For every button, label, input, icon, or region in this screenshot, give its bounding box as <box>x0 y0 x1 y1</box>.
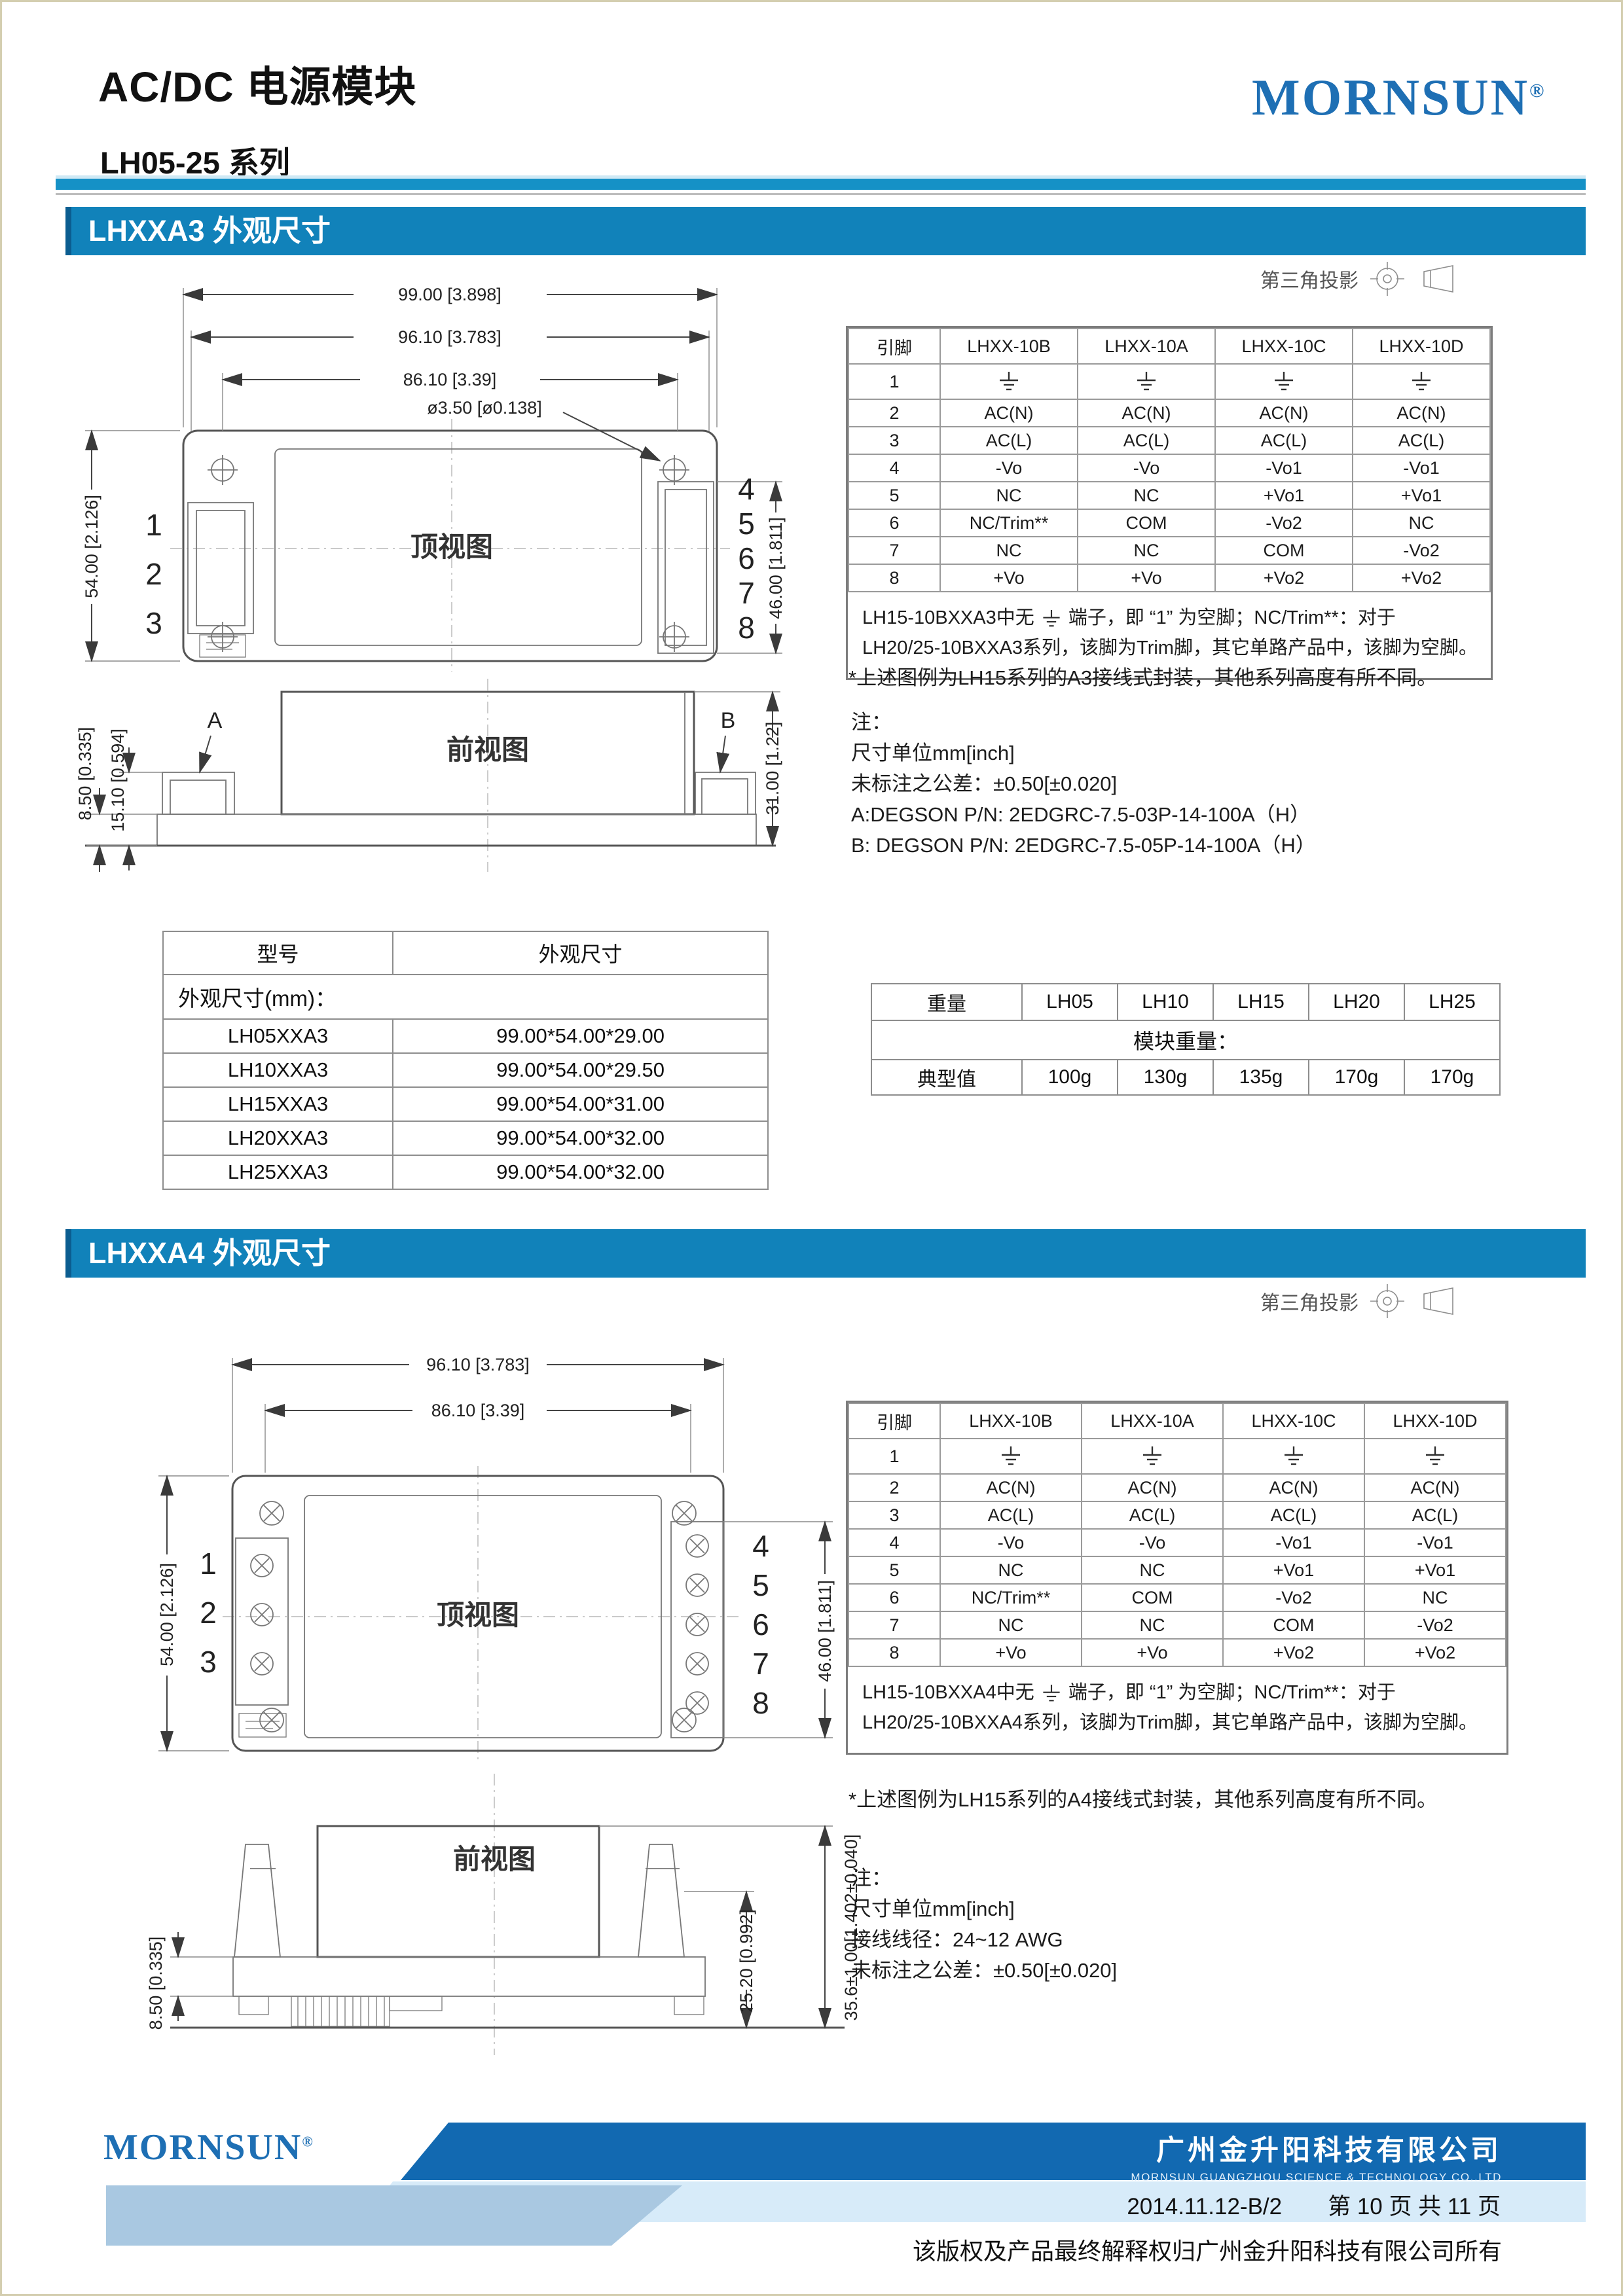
brand-logo: MORNSUN® <box>1252 68 1546 127</box>
column-header: LH05 <box>1022 984 1118 1020</box>
revision-code: 2014.11.12-B/2 <box>1127 2194 1282 2219</box>
page-title: AC/DC 电源模块 <box>98 54 416 114</box>
column-header: LHXX-10B <box>940 329 1078 364</box>
table-row: 6NC/Trim**COM-Vo2NC <box>848 509 1490 537</box>
pin-number: 4 <box>752 1529 769 1563</box>
table-cell: 1 <box>848 364 940 399</box>
table-cell: -Vo <box>1078 454 1215 482</box>
table-row: 7NCNCCOM-Vo2 <box>848 537 1490 564</box>
table-row: LH25XXA399.00*54.00*32.00 <box>163 1155 768 1189</box>
pin-table-body: 12AC(N)AC(N)AC(N)AC(N)3AC(L)AC(L)AC(L)AC… <box>848 1439 1506 1666</box>
column-header: LHXX-10D <box>1364 1403 1506 1439</box>
hole-dim-label: ø3.50 [ø0.138] <box>427 398 542 418</box>
table-cell: +Vo <box>1082 1639 1223 1666</box>
table-cell: 5 <box>848 482 940 509</box>
table-cell: AC(N) <box>940 1474 1082 1501</box>
column-header: 外观尺寸 <box>393 931 768 975</box>
footer-parallelogram <box>106 2185 682 2246</box>
callout-b: B <box>721 708 736 733</box>
table-cell: +Vo2 <box>1215 564 1353 592</box>
datasheet-page: AC/DC 电源模块 LH05-25 系列 MORNSUN® LHXXA3 外观… <box>0 0 1623 2296</box>
note-line: A:DEGSON P/N: 2EDGRC-7.5-03P-14-100A（H） <box>851 799 1316 830</box>
earth-ground-icon <box>1408 370 1434 393</box>
table-cell: NC <box>940 537 1078 564</box>
terminal-tower-left <box>234 1844 280 1957</box>
table-cell: 6 <box>848 1584 940 1611</box>
table-cell <box>1078 364 1215 399</box>
pin-number: 5 <box>752 1568 769 1602</box>
table-cell: 典型值 <box>871 1060 1022 1095</box>
table-cell: 99.00*54.00*32.00 <box>393 1121 768 1155</box>
weight-table-head: 重量LH05LH10LH15LH20LH25 <box>871 984 1500 1020</box>
dim-label: 99.00 [3.898] <box>398 285 501 304</box>
note-line: 接线线径：24~12 AWG <box>851 1924 1117 1955</box>
pin-table-head: 引脚LHXX-10BLHXX-10ALHXX-10CLHXX-10D <box>848 329 1490 364</box>
copyright-line: 该版权及产品最终解释权归广州金升阳科技有限公司所有 <box>913 2233 1502 2267</box>
table-cell: 2 <box>848 1474 940 1501</box>
table-row: LH20XXA399.00*54.00*32.00 <box>163 1121 768 1155</box>
dim-table-body: LH05XXA399.00*54.00*29.00LH10XXA399.00*5… <box>163 1019 768 1189</box>
earth-ground-icon <box>1040 609 1063 629</box>
column-header: LH10 <box>1118 984 1213 1020</box>
third-angle-projection-label: 第三角投影 <box>1260 1287 1359 1316</box>
table-cell: NC <box>1082 1611 1223 1639</box>
table-header-row: 引脚LHXX-10BLHXX-10ALHXX-10CLHXX-10D <box>848 329 1490 364</box>
note-line: 尺寸单位mm[inch] <box>851 1893 1117 1924</box>
table-cell: COM <box>1078 509 1215 537</box>
table-row: 7NCNCCOM-Vo2 <box>848 1611 1506 1639</box>
notes-block: 注： 尺寸单位mm[inch] 未标注之公差：±0.50[±0.020] A:D… <box>851 707 1316 861</box>
module-weight-table: 模块重量： 重量LH05LH10LH15LH20LH25 典型值100g130g… <box>871 983 1501 1096</box>
table-cell: NC/Trim** <box>940 1584 1082 1611</box>
column-header: LHXX-10D <box>1353 329 1490 364</box>
table-cell: AC(N) <box>1223 1474 1364 1501</box>
table-cell <box>1223 1439 1364 1474</box>
table-cell: 6 <box>848 509 940 537</box>
table-cell: +Vo1 <box>1364 1556 1506 1584</box>
weight-table-body: 典型值100g130g135g170g170g <box>871 1060 1500 1095</box>
table-row: LH10XXA399.00*54.00*29.50 <box>163 1053 768 1087</box>
company-name-en: MORNSUN GUANGZHOU SCIENCE & TECHNOLOGY C… <box>1131 2171 1502 2184</box>
dim-label: 8.50 [0.335] <box>146 1937 166 2030</box>
column-header: LH25 <box>1404 984 1500 1020</box>
table-row: 8+Vo+Vo+Vo2+Vo2 <box>848 1639 1506 1666</box>
table-cell: -Vo2 <box>1353 537 1490 564</box>
dim-label: 46.00 [1.811] <box>766 517 786 619</box>
earth-ground-icon <box>1133 370 1159 393</box>
earth-ground-icon <box>1422 1445 1448 1467</box>
pin-number: 5 <box>738 507 755 541</box>
table-cell: AC(L) <box>1215 427 1353 454</box>
table-cell: AC(L) <box>1364 1501 1506 1529</box>
terminal-block-right <box>658 482 714 653</box>
table-cell: 7 <box>848 537 940 564</box>
column-header: LHXX-10C <box>1215 329 1353 364</box>
company-name-cn: 广州金升阳科技有限公司 <box>1131 2128 1502 2168</box>
notes-block: 注： 尺寸单位mm[inch] 接线线径：24~12 AWG 未标注之公差：±0… <box>851 1863 1117 1986</box>
table-cell: 130g <box>1118 1060 1213 1095</box>
table-title-row: 模块重量： <box>871 1020 1500 1060</box>
note-line: 未标注之公差：±0.50[±0.020] <box>851 768 1316 799</box>
page-number-info: 第 10 页 共 11 页 <box>1328 2194 1501 2219</box>
table-cell: -Vo1 <box>1223 1529 1364 1556</box>
lhxxa4-front-view-drawing: 前视图 8.50 [0.335] 25.20 [0.992] 35.6±1.00… <box>131 1767 884 2075</box>
table-cell: AC(L) <box>1223 1501 1364 1529</box>
table-cell: AC(N) <box>1353 399 1490 427</box>
terminal-block-right <box>671 1522 723 1738</box>
footer-revision-line: 2014.11.12-B/2第 10 页 共 11 页 <box>1127 2188 1501 2221</box>
table-cell: +Vo <box>940 564 1078 592</box>
table-cell: AC(L) <box>1353 427 1490 454</box>
table-cell: -Vo1 <box>1215 454 1353 482</box>
table-cell: COM <box>1215 537 1353 564</box>
pin-table-head: 引脚LHXX-10BLHXX-10ALHXX-10CLHXX-10D <box>848 1403 1506 1439</box>
projection-cone-icon <box>1416 264 1457 294</box>
table-cell: -Vo2 <box>1364 1611 1506 1639</box>
header-rule <box>56 175 1586 195</box>
table-cell: -Vo1 <box>1364 1529 1506 1556</box>
column-header: LHXX-10C <box>1223 1403 1364 1439</box>
table-cell: +Vo2 <box>1353 564 1490 592</box>
brand-logo-text: MORNSUN <box>1252 69 1529 126</box>
table-cell: +Vo1 <box>1215 482 1353 509</box>
table-title: 模块重量： <box>871 1020 1500 1060</box>
table-cell: AC(L) <box>1082 1501 1223 1529</box>
outline-dimension-table: 外观尺寸(mm)： 型号外观尺寸 LH05XXA399.00*54.00*29.… <box>162 931 769 1190</box>
table-cell: COM <box>1223 1611 1364 1639</box>
table-cell: NC <box>1078 482 1215 509</box>
earth-ground-icon <box>1040 1683 1063 1704</box>
table-row: 3AC(L)AC(L)AC(L)AC(L) <box>848 1501 1506 1529</box>
table-cell: 7 <box>848 1611 940 1639</box>
pin-number: 2 <box>200 1596 217 1630</box>
table-cell: NC <box>1082 1556 1223 1584</box>
table-cell: AC(N) <box>1078 399 1215 427</box>
footer-company: 广州金升阳科技有限公司 MORNSUN GUANGZHOU SCIENCE & … <box>1131 2128 1502 2184</box>
column-header: LHXX-10A <box>1078 329 1215 364</box>
third-angle-projection: 第三角投影 <box>1260 260 1457 297</box>
table-row: 3AC(L)AC(L)AC(L)AC(L) <box>848 427 1490 454</box>
table-cell: -Vo2 <box>1215 509 1353 537</box>
note-text: 端子，即 “1” 为空脚；NC/Trim**：对于 <box>1068 607 1396 628</box>
note-text: LH20/25-10BXXA3系列，该脚为Trim脚，其它单路产品中，该脚为空脚… <box>862 637 1478 658</box>
terminal-block-left <box>236 1538 288 1705</box>
table-cell: AC(N) <box>1215 399 1353 427</box>
table-cell <box>1364 1439 1506 1474</box>
pin-table: 引脚LHXX-10BLHXX-10ALHXX-10CLHXX-10D 12AC(… <box>848 1403 1506 1667</box>
view-label: 顶视图 <box>437 1600 519 1630</box>
dim-label: 25.20 [0.992] <box>737 1909 756 2013</box>
pin-number: 7 <box>752 1647 769 1681</box>
table-header-row: 引脚LHXX-10BLHXX-10ALHXX-10CLHXX-10D <box>848 1403 1506 1439</box>
figure-note: *上述图例为LH15系列的A3接线式封装，其他系列高度有所不同。 <box>848 661 1437 691</box>
callout-a: A <box>208 708 223 733</box>
table-cell: LH25XXA3 <box>163 1155 393 1189</box>
table-cell: LH10XXA3 <box>163 1053 393 1087</box>
table-cell: AC(N) <box>940 399 1078 427</box>
table-cell: LH20XXA3 <box>163 1121 393 1155</box>
table-cell <box>1215 364 1353 399</box>
view-label: 顶视图 <box>410 531 493 562</box>
table-cell: 3 <box>848 1501 940 1529</box>
terminal-front-left <box>162 772 234 814</box>
table-cell: 170g <box>1309 1060 1404 1095</box>
table-cell: 170g <box>1404 1060 1500 1095</box>
table-cell: -Vo <box>1082 1529 1223 1556</box>
table-row: LH15XXA399.00*54.00*31.00 <box>163 1087 768 1121</box>
table-cell <box>940 1439 1082 1474</box>
table-header-row: 型号外观尺寸 <box>163 931 768 975</box>
table-cell <box>1353 364 1490 399</box>
table-title: 外观尺寸(mm)： <box>163 975 768 1019</box>
table-title-row: 外观尺寸(mm)： <box>163 975 768 1019</box>
table-row: 4-Vo-Vo-Vo1-Vo1 <box>848 1529 1506 1556</box>
table-row: 1 <box>848 1439 1506 1474</box>
view-label: 前视图 <box>447 734 529 765</box>
lhxxa4-top-view-drawing: 96.10 [3.783] 86.10 [3.39] 54.00 [2.126]… <box>131 1335 884 1767</box>
table-cell: NC <box>940 1556 1082 1584</box>
dim-label: 31.00 [1.22] <box>763 722 782 816</box>
note-text: 端子，即 “1” 为空脚；NC/Trim**：对于 <box>1068 1682 1396 1703</box>
table-cell: AC(L) <box>940 1501 1082 1529</box>
pin-number: 8 <box>752 1686 769 1720</box>
terminal-tower-right <box>638 1844 684 1957</box>
terminal-block-left <box>188 503 253 634</box>
earth-ground-icon <box>1271 370 1297 393</box>
table-cell: 135g <box>1213 1060 1309 1095</box>
table-row: 1 <box>848 364 1490 399</box>
terminal-front-right <box>695 772 756 814</box>
note-line: 未标注之公差：±0.50[±0.020] <box>851 1955 1117 1986</box>
table-cell: NC <box>1078 537 1215 564</box>
view-label: 前视图 <box>453 1844 536 1874</box>
table-cell: 99.00*54.00*32.00 <box>393 1155 768 1189</box>
table-cell: AC(N) <box>1364 1474 1506 1501</box>
connector-hatch <box>291 1996 390 2026</box>
pin-table-body: 12AC(N)AC(N)AC(N)AC(N)3AC(L)AC(L)AC(L)AC… <box>848 364 1490 592</box>
table-cell: -Vo <box>940 454 1078 482</box>
earth-ground-icon <box>1281 1445 1307 1467</box>
footer-brand-logo: MORNSUN® <box>103 2126 314 2168</box>
table-cell: LH05XXA3 <box>163 1019 393 1053</box>
projection-cone-icon <box>1416 1286 1457 1316</box>
pin-number: 1 <box>145 508 162 542</box>
column-header: LHXX-10B <box>940 1403 1082 1439</box>
projection-circle-icon <box>1369 260 1406 297</box>
table-cell: +Vo2 <box>1223 1639 1364 1666</box>
registered-mark: ® <box>302 2133 314 2149</box>
pin-number: 6 <box>738 541 755 575</box>
table-cell: 99.00*54.00*29.00 <box>393 1019 768 1053</box>
table-row: 4-Vo-Vo-Vo1-Vo1 <box>848 454 1490 482</box>
note-text: LH15-10BXXA4中无 <box>862 1682 1034 1703</box>
table-cell <box>940 364 1078 399</box>
page-footer: MORNSUN® 广州金升阳科技有限公司 MORNSUN GUANGZHOU S… <box>65 2123 1586 2286</box>
pin-number: 7 <box>738 576 755 610</box>
rule-gray-line <box>56 193 1586 195</box>
table-cell: 8 <box>848 1639 940 1666</box>
table-cell: AC(L) <box>940 427 1078 454</box>
column-header: 型号 <box>163 931 393 975</box>
pin-number: 1 <box>200 1547 217 1581</box>
registered-mark: ® <box>1529 80 1546 101</box>
column-header: 重量 <box>871 984 1022 1020</box>
pin-table-note: LH15-10BXXA4中无 端子，即 “1” 为空脚；NC/Trim**：对于… <box>848 1667 1506 1753</box>
bottom-feet <box>239 1996 704 2015</box>
table-cell: 5 <box>848 1556 940 1584</box>
section-heading-lhxxa3: LHXXA3 外观尺寸 <box>65 207 1586 255</box>
dim-label: 46.00 [1.811] <box>815 1580 835 1682</box>
note-line: 尺寸单位mm[inch] <box>851 738 1316 768</box>
note-line: 注： <box>851 707 1316 738</box>
column-header: LHXX-10A <box>1082 1403 1223 1439</box>
table-row: 8+Vo+Vo+Vo2+Vo2 <box>848 564 1490 592</box>
earth-ground-icon <box>998 1445 1024 1467</box>
table-cell: COM <box>1082 1584 1223 1611</box>
dim-label: 54.00 [2.126] <box>82 495 101 598</box>
pin-table: 引脚LHXX-10BLHXX-10ALHXX-10CLHXX-10D 12AC(… <box>848 328 1491 592</box>
footer-brand-logo-text: MORNSUN <box>103 2127 302 2168</box>
dim-label: 86.10 [3.39] <box>403 370 497 389</box>
note-line: B: DEGSON P/N: 2EDGRC-7.5-05P-14-100A（H） <box>851 830 1316 861</box>
section-heading-lhxxa4: LHXXA4 外观尺寸 <box>65 1229 1586 1278</box>
table-row: 典型值100g130g135g170g170g <box>871 1060 1500 1095</box>
pin-number: 8 <box>738 611 755 645</box>
earth-ground-icon <box>1139 1445 1165 1467</box>
table-cell: +Vo2 <box>1364 1639 1506 1666</box>
base-plate <box>157 814 756 846</box>
lhxxa3-front-view-drawing: A B 前视图 8.50 [0.335] 15.10 [0.594] 31.00… <box>65 675 786 878</box>
dim-label: 8.50 [0.335] <box>75 727 95 821</box>
column-header: LH20 <box>1309 984 1404 1020</box>
table-cell: 8 <box>848 564 940 592</box>
dim-label: 15.10 [0.594] <box>108 728 128 832</box>
base-plate <box>233 1957 705 1996</box>
dim-label: 86.10 [3.39] <box>431 1401 525 1420</box>
table-cell: NC <box>940 1611 1082 1639</box>
table-cell: NC/Trim** <box>940 509 1078 537</box>
dim-table-head: 型号外观尺寸 <box>163 931 768 975</box>
note-line: 注： <box>851 1863 1117 1893</box>
pin-number: 2 <box>145 557 162 591</box>
pin-number: 3 <box>145 606 162 640</box>
table-cell: +Vo1 <box>1223 1556 1364 1584</box>
table-cell: NC <box>940 482 1078 509</box>
table-row: 5NCNC+Vo1+Vo1 <box>848 482 1490 509</box>
table-cell: -Vo2 <box>1223 1584 1364 1611</box>
table-cell: 4 <box>848 1529 940 1556</box>
pin-number: 6 <box>752 1607 769 1641</box>
table-cell: 99.00*54.00*29.50 <box>393 1053 768 1087</box>
table-header-row: 重量LH05LH10LH15LH20LH25 <box>871 984 1500 1020</box>
table-row: 5NCNC+Vo1+Vo1 <box>848 1556 1506 1584</box>
table-row: 2AC(N)AC(N)AC(N)AC(N) <box>848 1474 1506 1501</box>
brand-mark-box <box>239 1713 286 1737</box>
note-text: LH20/25-10BXXA4系列，该脚为Trim脚，其它单路产品中，该脚为空脚… <box>862 1712 1478 1733</box>
table-cell: 99.00*54.00*31.00 <box>393 1087 768 1121</box>
pin-number: 3 <box>200 1645 217 1679</box>
earth-ground-icon <box>996 370 1022 393</box>
table-row: 6NC/Trim**COM-Vo2NC <box>848 1584 1506 1611</box>
pin-table-lhxxa3: 引脚LHXX-10BLHXX-10ALHXX-10CLHXX-10D 12AC(… <box>846 326 1493 680</box>
rule-blue-bar <box>56 179 1586 190</box>
table-row: LH05XXA399.00*54.00*29.00 <box>163 1019 768 1053</box>
table-cell: +Vo1 <box>1353 482 1490 509</box>
pin-number: 4 <box>738 472 755 506</box>
table-cell <box>1082 1439 1223 1474</box>
third-angle-projection: 第三角投影 <box>1260 1283 1457 1319</box>
dim-label: 96.10 [3.783] <box>398 327 501 347</box>
dim-label: 96.10 [3.783] <box>426 1355 530 1374</box>
table-cell: -Vo1 <box>1353 454 1490 482</box>
table-cell: AC(N) <box>1082 1474 1223 1501</box>
table-cell: 4 <box>848 454 940 482</box>
table-cell: +Vo <box>1078 564 1215 592</box>
table-cell: LH15XXA3 <box>163 1087 393 1121</box>
column-header: 引脚 <box>848 329 940 364</box>
figure-note: *上述图例为LH15系列的A4接线式封装，其他系列高度有所不同。 <box>848 1783 1437 1812</box>
note-text: LH15-10BXXA3中无 <box>862 607 1034 628</box>
table-cell: +Vo <box>940 1639 1082 1666</box>
table-cell: NC <box>1353 509 1490 537</box>
dim-label: 54.00 [2.126] <box>157 1563 177 1666</box>
column-header: LH15 <box>1213 984 1309 1020</box>
table-cell: 100g <box>1022 1060 1118 1095</box>
projection-circle-icon <box>1369 1283 1406 1319</box>
table-cell: 3 <box>848 427 940 454</box>
table-cell: NC <box>1364 1584 1506 1611</box>
pin-table-lhxxa4: 引脚LHXX-10BLHXX-10ALHXX-10CLHXX-10D 12AC(… <box>846 1401 1508 1755</box>
table-cell: -Vo <box>940 1529 1082 1556</box>
lhxxa3-top-view-drawing: 99.00 [3.898] 96.10 [3.783] 86.10 [3.39]… <box>65 274 786 676</box>
column-header: 引脚 <box>848 1403 940 1439</box>
table-cell: AC(L) <box>1078 427 1215 454</box>
third-angle-projection-label: 第三角投影 <box>1260 264 1359 293</box>
table-row: 2AC(N)AC(N)AC(N)AC(N) <box>848 399 1490 427</box>
table-cell: 1 <box>848 1439 940 1474</box>
table-cell: 2 <box>848 399 940 427</box>
